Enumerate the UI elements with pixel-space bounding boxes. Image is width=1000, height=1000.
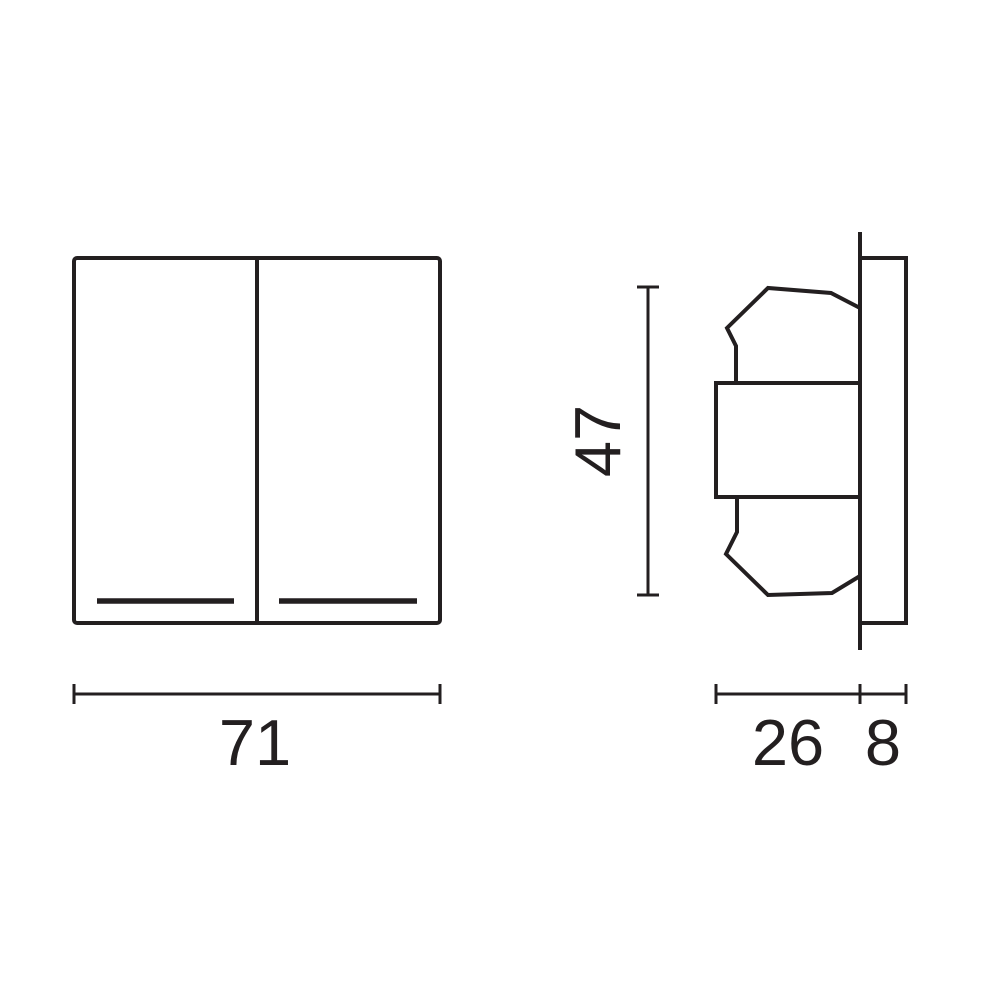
dimension-labels: 71 47 26 8 (219, 405, 901, 779)
technical-drawing: 71 47 26 8 (0, 0, 1000, 1000)
mounting-plate-profile (860, 258, 906, 623)
plate-thickness-label: 8 (865, 706, 901, 779)
side-height-label: 47 (561, 405, 634, 477)
frame-profile (716, 383, 860, 497)
lower-rocker-profile (726, 497, 860, 595)
front-width-label: 71 (219, 706, 291, 779)
front-view (74, 258, 440, 623)
side-depth-label: 26 (752, 706, 824, 779)
side-height-dimension (637, 287, 659, 595)
side-view (716, 232, 906, 650)
front-width-dimension (74, 684, 440, 704)
side-depth-dimension (716, 684, 906, 704)
upper-rocker-profile (727, 288, 860, 383)
